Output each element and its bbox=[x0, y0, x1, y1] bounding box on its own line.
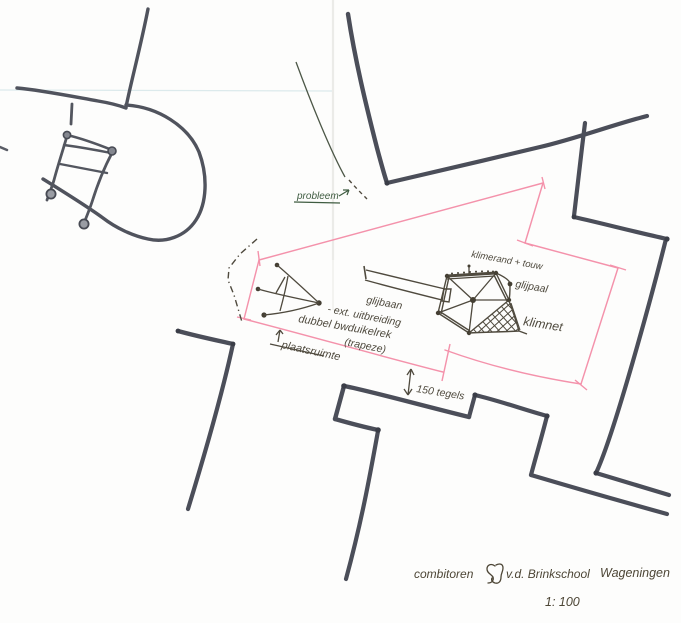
svg-text:v.d. Brinkschool: v.d. Brinkschool bbox=[506, 567, 590, 581]
svg-text:probleem: probleem bbox=[296, 191, 339, 202]
svg-text:1: 100: 1: 100 bbox=[545, 595, 580, 609]
svg-text:Wageningen: Wageningen bbox=[600, 566, 670, 580]
svg-text:combitoren: combitoren bbox=[414, 567, 474, 581]
